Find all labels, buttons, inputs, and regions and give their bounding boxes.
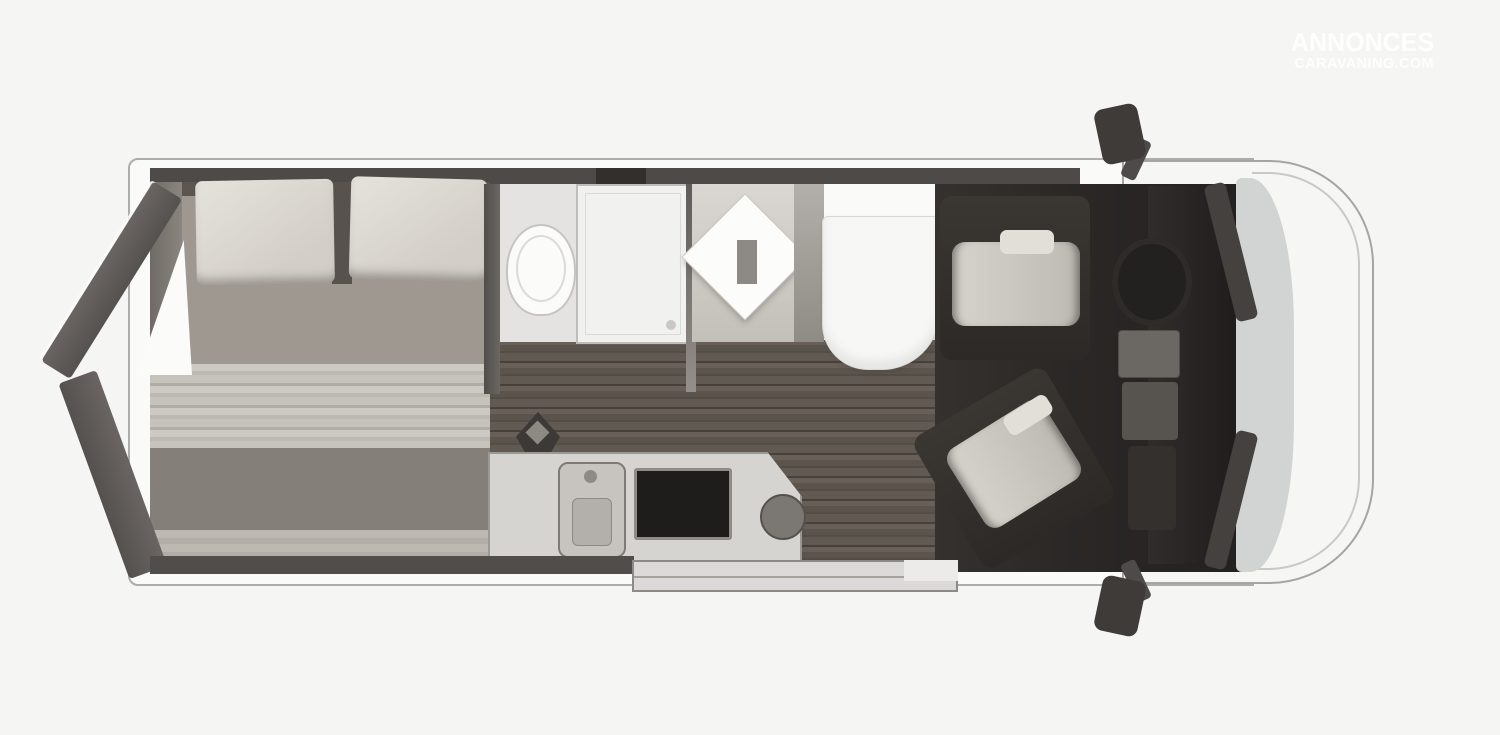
sink-faucet (584, 470, 597, 483)
bathroom-wall-left (484, 184, 500, 394)
pillow-left (195, 179, 335, 285)
counter-end-circle (760, 494, 806, 540)
bed-blanket (150, 364, 490, 448)
shower-tray (576, 184, 690, 344)
watermark-line2: CARAVANING.COM (1291, 57, 1434, 72)
passenger-seat-cushion (952, 242, 1080, 326)
console-tray (1128, 446, 1176, 530)
steering-wheel (1112, 238, 1192, 326)
center-console-lower (1122, 382, 1178, 440)
campervan-floorplan-image: ANNONCES CARAVANING.COM (0, 0, 1500, 735)
shower-drain (666, 320, 676, 330)
step-end-panel (904, 560, 958, 581)
passenger-seat-headrest (1000, 230, 1054, 254)
center-console-upper (1118, 330, 1180, 378)
mirror-top-head (1093, 102, 1148, 166)
stove (634, 468, 732, 540)
wall-window-gap (596, 168, 646, 184)
toilet-seat (516, 235, 566, 302)
pillow-right (349, 176, 488, 282)
bottom-wall (150, 556, 634, 574)
toilet (506, 224, 576, 316)
watermark-line1: ANNONCES (1291, 30, 1434, 56)
bed-footer-trim (150, 530, 490, 558)
bed-footer-panel (150, 448, 490, 530)
sink-basin (572, 498, 612, 546)
watermark: ANNONCES CARAVANING.COM (1291, 30, 1434, 72)
cushion-center (737, 240, 757, 284)
vent-core (525, 420, 549, 444)
dinette-table (822, 216, 940, 370)
shower-inner-edge (585, 193, 681, 335)
entry-gap-panel (794, 184, 824, 342)
